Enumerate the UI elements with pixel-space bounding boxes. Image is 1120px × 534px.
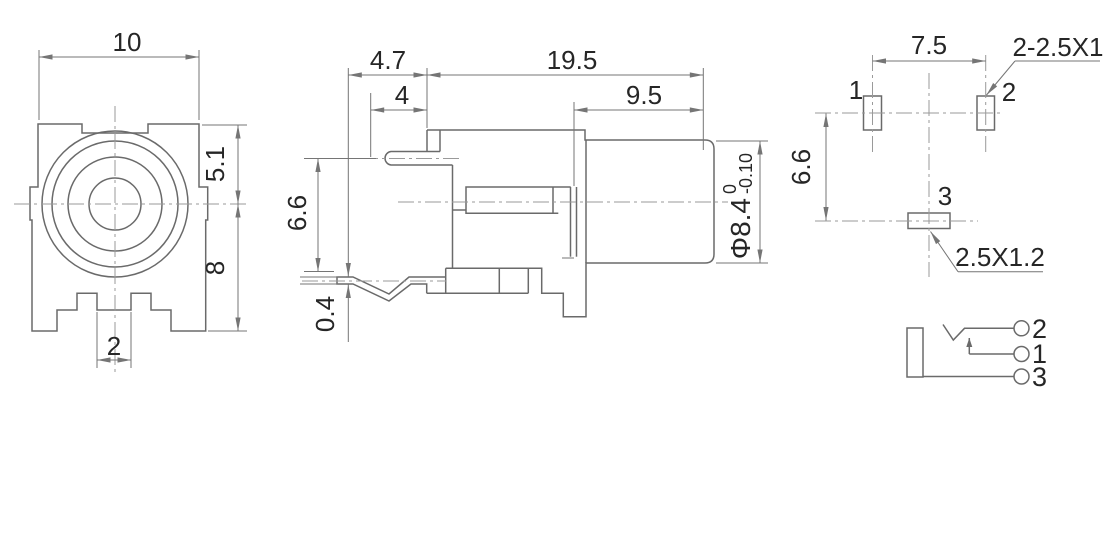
front-dimensions: 10 5.1 8 2 bbox=[39, 27, 247, 368]
footprint-pin2-label: 2 bbox=[1002, 77, 1016, 107]
dim-side-leg-thickness: 0.4 bbox=[310, 296, 340, 332]
barrel-diameter-value: Φ8.4 bbox=[725, 198, 756, 259]
front-view: 10 5.1 8 2 bbox=[14, 27, 247, 372]
note-footprint-pads12: 2-2.5X1 bbox=[1012, 32, 1103, 62]
dim-footprint-pad-pitch: 7.5 bbox=[911, 30, 947, 60]
dim-front-width: 10 bbox=[113, 27, 142, 57]
schematic-terminal-2 bbox=[1014, 321, 1029, 336]
footprint-pin1-label: 1 bbox=[849, 75, 863, 105]
dim-side-pin-length: 4 bbox=[395, 80, 409, 110]
dim-side-barrel-length: 9.5 bbox=[626, 80, 662, 110]
note-footprint-pad3: 2.5X1.2 bbox=[955, 242, 1045, 272]
schematic-terminal-1 bbox=[1014, 347, 1029, 362]
footprint-pin3-label: 3 bbox=[938, 181, 952, 211]
schematic-pin-sleeve-label: 3 bbox=[1032, 362, 1047, 392]
dim-front-lower-height: 8 bbox=[200, 261, 230, 275]
footprint-view: 7.5 6.6 2-2.5X1 2.5X1.2 1 2 3 bbox=[786, 30, 1104, 277]
dim-side-barrel-diameter: Φ8.4 0 -0.10 bbox=[720, 153, 756, 259]
dim-side-body-length: 19.5 bbox=[547, 45, 598, 75]
schematic-sleeve-bar bbox=[907, 328, 923, 377]
side-contact bbox=[466, 187, 571, 213]
footprint-dimensions: 7.5 6.6 2-2.5X1 2.5X1.2 bbox=[786, 30, 1104, 272]
schematic-tip-contact bbox=[943, 325, 1014, 341]
side-view: 4.7 19.5 4 9.5 6.6 0.4 Φ8.4 bbox=[282, 45, 768, 342]
side-dimensions: 4.7 19.5 4 9.5 6.6 0.4 Φ8.4 bbox=[282, 45, 768, 342]
barrel-tolerance-lower: -0.10 bbox=[736, 153, 756, 194]
schematic-terminal-3 bbox=[1014, 369, 1029, 384]
dim-footprint-row-spacing: 6.6 bbox=[786, 149, 816, 185]
connector-drawing: 10 5.1 8 2 bbox=[0, 0, 1120, 534]
dim-front-tab-width: 2 bbox=[107, 331, 121, 361]
dim-side-front-offset: 4.7 bbox=[370, 45, 406, 75]
dim-front-upper-height: 5.1 bbox=[200, 146, 230, 182]
engineering-drawing-page: 10 5.1 8 2 bbox=[0, 0, 1120, 534]
dim-side-pin-height: 6.6 bbox=[282, 195, 312, 231]
schematic-view: 2 1 3 bbox=[907, 314, 1047, 392]
